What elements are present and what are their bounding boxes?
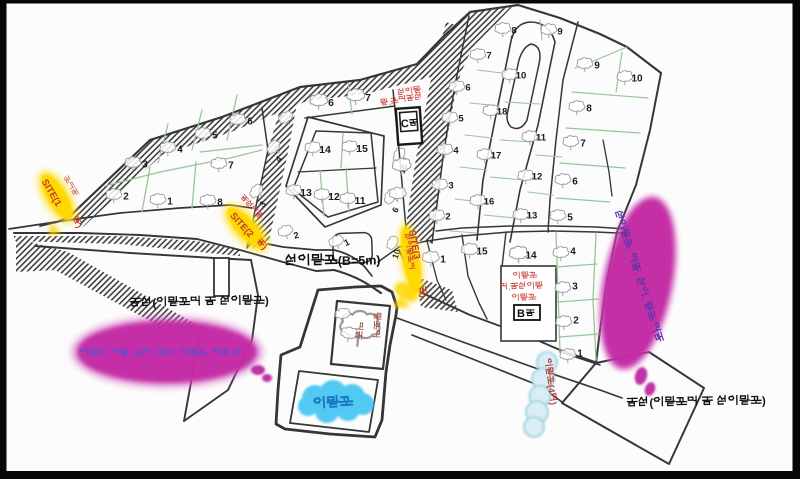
- svg-text:9: 9: [557, 26, 562, 37]
- svg-text:6: 6: [465, 82, 470, 93]
- svg-text:17: 17: [491, 150, 502, 161]
- svg-text:12: 12: [328, 191, 340, 203]
- svg-text:,: ,: [207, 348, 210, 358]
- svg-text:7: 7: [486, 50, 491, 61]
- svg-text:6: 6: [328, 97, 334, 109]
- svg-text:14: 14: [319, 144, 331, 156]
- svg-text:,: ,: [107, 348, 110, 358]
- svg-text:1: 1: [167, 197, 173, 208]
- svg-text:8: 8: [511, 25, 516, 36]
- svg-text:9: 9: [594, 61, 600, 72]
- svg-text:7: 7: [365, 92, 371, 104]
- svg-text:2: 2: [123, 192, 129, 203]
- svg-text:1: 1: [577, 349, 583, 360]
- svg-text:4: 4: [453, 145, 459, 156]
- svg-text:,: ,: [508, 282, 511, 292]
- svg-text:5: 5: [567, 213, 573, 224]
- svg-text:5: 5: [458, 113, 464, 124]
- svg-text:18: 18: [497, 106, 508, 117]
- svg-text:3: 3: [448, 180, 453, 191]
- svg-text:): ): [265, 296, 269, 308]
- svg-text:,: ,: [152, 348, 155, 358]
- svg-text:5: 5: [212, 131, 218, 142]
- svg-text:(B=5m): (B=5m): [338, 253, 381, 268]
- svg-text:10: 10: [516, 70, 527, 81]
- svg-text:13: 13: [527, 210, 538, 221]
- svg-text:6: 6: [247, 117, 253, 128]
- svg-text:14: 14: [525, 251, 537, 262]
- svg-text:4: 4: [570, 247, 576, 258]
- svg-text:12: 12: [532, 171, 543, 182]
- svg-text:2: 2: [445, 211, 450, 222]
- svg-text:8: 8: [586, 104, 592, 115]
- svg-text:10: 10: [631, 74, 643, 85]
- svg-text:3: 3: [572, 282, 578, 293]
- svg-text:16: 16: [484, 196, 495, 207]
- svg-text:,: ,: [129, 348, 132, 358]
- svg-text:B: B: [517, 308, 525, 320]
- svg-text:(4: (4: [546, 384, 557, 393]
- svg-text:7: 7: [228, 161, 234, 172]
- svg-text:3: 3: [142, 160, 148, 171]
- svg-text:,: ,: [175, 348, 178, 358]
- svg-text:(: (: [152, 298, 156, 310]
- svg-text:11: 11: [536, 132, 547, 143]
- svg-text:15: 15: [476, 247, 488, 258]
- svg-text:): ): [762, 396, 766, 408]
- svg-text:1: 1: [440, 255, 446, 266]
- svg-text:2: 2: [573, 316, 579, 327]
- svg-text:C: C: [400, 118, 409, 131]
- svg-text:4: 4: [177, 145, 183, 156]
- svg-text:6: 6: [572, 177, 578, 188]
- svg-text:13: 13: [300, 187, 312, 199]
- svg-text:11: 11: [354, 195, 365, 207]
- svg-text:15: 15: [356, 143, 368, 155]
- svg-text:8: 8: [217, 198, 223, 209]
- svg-text:7: 7: [580, 139, 586, 150]
- svg-text:(: (: [649, 398, 653, 410]
